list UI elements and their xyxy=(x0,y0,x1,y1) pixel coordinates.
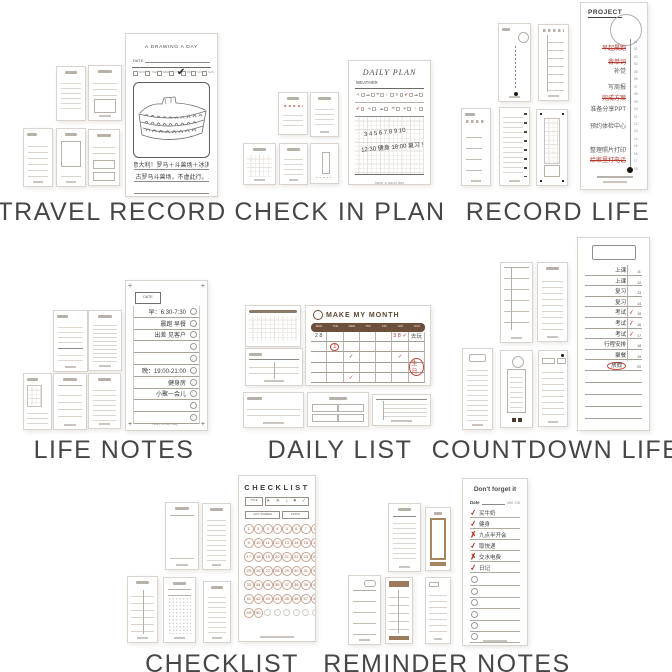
recordlife-mini-card-5 xyxy=(536,109,568,186)
ruled-lines xyxy=(208,593,226,634)
number-cell: 16 xyxy=(311,538,317,548)
number-cell xyxy=(273,608,283,618)
checkbox xyxy=(169,71,174,76)
row-circle xyxy=(190,355,197,362)
mini-footer-bar xyxy=(212,564,222,566)
number-cell xyxy=(282,608,292,618)
number-cell: 32 xyxy=(311,566,317,576)
travel-mini-card-3 xyxy=(23,128,53,187)
weekday-label: TUE xyxy=(333,326,338,329)
group-label-record-life: RECORD LIFE xyxy=(466,198,651,227)
ruled-lines xyxy=(207,516,226,561)
empty-rows xyxy=(470,575,520,646)
checklist-mini-card-1 xyxy=(165,502,199,570)
number-cell: 46 xyxy=(292,594,302,604)
finish-cell: FINISH xyxy=(282,511,309,519)
calendar-cell xyxy=(360,363,376,373)
divider xyxy=(355,102,424,103)
circle-mark xyxy=(518,32,529,43)
stamp-dots xyxy=(283,104,303,108)
row-circle xyxy=(190,367,197,374)
recordlife-mini-card-3 xyxy=(461,108,491,186)
countdown-row: 复习 14 xyxy=(585,297,642,308)
tick-number: 15 xyxy=(634,145,638,148)
number-cell: 22 xyxy=(292,552,302,562)
number-cell: 12 xyxy=(273,538,283,548)
ruled-lines xyxy=(58,389,82,421)
note-row: 健身房 xyxy=(134,377,199,389)
number-cell: 36 xyxy=(273,580,283,590)
reminder-mini-card-3 xyxy=(348,575,381,645)
countdown-row: 聚餐 19 xyxy=(585,350,642,361)
note-row: 早：6:30-7:30 xyxy=(134,306,199,318)
checklist-mini-card-2 xyxy=(202,503,231,570)
group-label-daily-list: DAILY LIST xyxy=(268,436,413,465)
note-row: 出差 见客户 xyxy=(134,330,199,342)
tick-number: 17 xyxy=(634,160,638,163)
number-cell: 47 xyxy=(301,594,311,604)
calendar-cell xyxy=(409,342,425,352)
mini-header-bar xyxy=(249,310,297,313)
memo-frame xyxy=(430,518,446,560)
lifenotes-mini-card-3 xyxy=(23,373,52,430)
mini-footer-bar xyxy=(359,639,370,641)
row-circle xyxy=(190,331,197,338)
date-label: DATE xyxy=(133,59,143,63)
calendar-cell: ✓ xyxy=(392,352,408,362)
mini-footer-bar xyxy=(472,424,482,426)
check-mark xyxy=(629,359,636,360)
tick-number: 08 xyxy=(634,93,638,96)
calendar-header: MAKE MY MONTH xyxy=(313,310,430,320)
group-daily-list: MAKE MY MONTH MONTUEWEDTHUFRISATSUN 2 83… xyxy=(0,0,672,672)
blank-box xyxy=(61,141,81,167)
date-row: DATE xyxy=(133,56,210,63)
row-text: 聚餐 xyxy=(585,354,629,360)
number-cell xyxy=(311,608,317,618)
countdown-row: 复习 13 xyxy=(585,286,642,297)
card-footer: Have a nice day ~ xyxy=(126,419,207,427)
check-mark xyxy=(629,274,636,275)
group-label-countdown-life: COUNTDOWN LIFE xyxy=(432,436,672,465)
mini-footer-bar xyxy=(434,638,443,640)
countdown-mini-card-3 xyxy=(462,348,493,430)
column-divider xyxy=(398,590,399,633)
checklist-mini-card-4 xyxy=(163,577,196,643)
circle-mark xyxy=(610,14,642,46)
row-text: 行程安排 xyxy=(585,343,629,349)
calendar-cell: ✓ xyxy=(344,352,360,362)
number-cell: 42 xyxy=(254,594,264,604)
mini-title-bar xyxy=(65,133,78,136)
check-mark: ✓ xyxy=(629,331,637,338)
todo-row: ✗ 九点半开会 xyxy=(470,529,520,540)
checkin-mini-card-3 xyxy=(243,143,276,185)
row-circle xyxy=(471,576,478,583)
note-rows: 早：6:30-7:30晨跑 早餐出差 见客户晚：19:00-21:00健身房小聚… xyxy=(133,306,200,424)
calendar-cell: 去玩 xyxy=(409,332,425,342)
divider xyxy=(58,348,83,349)
tick-number: 18 xyxy=(634,168,638,171)
row-text: 考试 xyxy=(585,322,629,328)
checkin-mini-card-5 xyxy=(310,143,339,184)
ruled-lines xyxy=(247,404,300,421)
countdown-row: 考试 ✓ 16 xyxy=(585,318,642,329)
tick-number: 06 xyxy=(634,78,638,81)
number-cell: 28 xyxy=(273,566,283,576)
mini-footer-bar xyxy=(99,423,110,425)
mini-footer-bar xyxy=(509,180,519,182)
number-cell: 44 xyxy=(273,594,283,604)
row-text: 复习 xyxy=(585,290,629,296)
row-number: 11 xyxy=(636,271,642,275)
calendar-cell xyxy=(344,332,360,342)
calendar-cell xyxy=(376,342,392,352)
table-rows xyxy=(389,590,409,633)
calendar-cell: ✓ xyxy=(344,373,360,383)
inner-frame xyxy=(507,369,526,413)
product-collage: A DRAWING A DAY DATE ✔ MONTUEWEDTHUFRISA… xyxy=(0,0,672,672)
empty-row xyxy=(585,383,642,395)
mini-footer-bar xyxy=(391,420,412,422)
number-cell: 45 xyxy=(282,594,292,604)
card-title: CHECKLIST xyxy=(239,483,315,492)
countdown-row: 行程安排 18 xyxy=(585,339,642,350)
calendar-cell xyxy=(327,373,343,383)
project-entry: 完成方案 xyxy=(602,93,626,102)
check-mark xyxy=(629,295,636,296)
footer-print-line xyxy=(603,181,627,183)
row-number: 13 xyxy=(636,292,642,296)
mini-footer-bar xyxy=(548,95,558,97)
ruled-lines xyxy=(27,409,48,424)
number-cell: 38 xyxy=(292,580,302,590)
calendar-cell xyxy=(311,363,327,373)
mini-footer-bar xyxy=(471,180,481,182)
calendar-cell xyxy=(376,363,392,373)
weather-icon: ☂ xyxy=(391,105,400,113)
number-cell: 7 xyxy=(301,524,311,534)
check-mark xyxy=(629,306,636,307)
tick-number: 14 xyxy=(634,138,638,141)
crop-mark: + xyxy=(201,421,205,428)
ruled-lines xyxy=(315,105,334,129)
weather-icon: ❄ xyxy=(403,105,411,113)
group-label-reminder-notes: REMINDER NOTES xyxy=(323,650,570,672)
group-label-check-in-plan: CHECK IN PLAN xyxy=(234,198,445,227)
corner-dot xyxy=(562,113,564,115)
row-circle xyxy=(471,645,478,646)
group-label-travel-record: TRAVEL RECORD xyxy=(0,198,227,227)
number-cell: 33 xyxy=(244,580,254,590)
corner-dot xyxy=(561,354,564,357)
number-cell: 49 xyxy=(244,608,254,618)
empty-row xyxy=(585,419,642,431)
check-mark xyxy=(629,369,636,370)
header-cell xyxy=(542,358,555,364)
checkin-mini-card-2 xyxy=(310,92,339,137)
number-cell: 41 xyxy=(244,594,254,604)
travel-mini-card-5 xyxy=(88,129,120,186)
dailylist-mini-card-1 xyxy=(245,305,301,347)
todo-row: ✗ 交水电费 xyxy=(470,551,520,562)
cell-mark: 2 8 xyxy=(315,333,323,339)
number-cell: 25 xyxy=(244,566,254,576)
group-reminder-notes: Don't forget it Date MM / DD ✓ 买牛奶 ✓ 健身 xyxy=(0,0,672,672)
number-cell: 19 xyxy=(263,552,273,562)
number-cell: 10 xyxy=(254,538,264,548)
date-box: DATE xyxy=(135,292,161,304)
empty-line xyxy=(134,182,209,194)
mini-footer-bar xyxy=(320,131,330,133)
title-cell: TITLE xyxy=(245,497,263,506)
project-entry: 背单词 xyxy=(608,57,626,66)
stamp-box xyxy=(518,418,522,422)
dotted-scale xyxy=(515,46,516,90)
group-label-life-notes: LIFE NOTES xyxy=(34,436,195,465)
divider xyxy=(132,67,211,68)
row-text: 买牛奶 xyxy=(479,509,496,518)
checklist-mini-card-3 xyxy=(127,576,158,643)
check-mark xyxy=(629,285,636,286)
mini-title-bar xyxy=(253,148,267,151)
number-cell: 48 xyxy=(311,594,317,604)
two-column-rows xyxy=(131,590,154,634)
weather-label: WEATHER xyxy=(356,81,423,85)
recordlife-mini-card-1 xyxy=(498,23,531,102)
calendar-cell: 生日 xyxy=(409,363,425,373)
circle-mark xyxy=(512,356,524,368)
header-cell xyxy=(557,358,566,364)
row-text: 早：6:30-7:30 xyxy=(149,307,186,316)
weekday-label: WED xyxy=(349,326,355,329)
reminder-notes-hero-card: Don't forget it Date MM / DD ✓ 买牛奶 ✓ 健身 xyxy=(462,478,528,646)
tick-number: 12 xyxy=(634,123,638,126)
card-title: A DRAWING A DAY xyxy=(126,42,217,51)
number-cell: 18 xyxy=(254,552,264,562)
handwritten-note: 去意大利！罗马＋斗兽场＋冰淇淋 xyxy=(134,158,209,170)
ruled-lines xyxy=(93,78,117,96)
checkbox xyxy=(202,71,207,76)
mini-footer-bar xyxy=(66,181,76,183)
reminder-mini-card-4 xyxy=(385,577,413,644)
calendar-cell xyxy=(311,352,327,362)
mini-footer-bar xyxy=(509,96,520,98)
ruled-lines xyxy=(510,373,523,409)
countdown-mini-card-5 xyxy=(538,350,568,427)
check-mark: ✓ xyxy=(629,310,637,317)
footer-print-bar xyxy=(260,636,293,638)
mini-title-bar xyxy=(173,582,187,585)
number-cell: 43 xyxy=(263,594,273,604)
number-cell: 14 xyxy=(292,538,302,548)
number-cell: 24 xyxy=(311,552,317,562)
empty-row xyxy=(470,586,520,597)
number-cell: 15 xyxy=(301,538,311,548)
icon-row: ✈ ☀ ♪ ♥ ✓ xyxy=(265,497,309,506)
ruled-lines xyxy=(283,111,303,128)
blank-box xyxy=(93,172,115,181)
mini-footer-bar xyxy=(254,179,265,181)
checkbox-row xyxy=(466,120,486,123)
project-entry: 给家里打电话 xyxy=(590,155,626,164)
dailylist-mini-card-4 xyxy=(307,392,369,427)
row-number: 16 xyxy=(636,324,642,328)
title-row: TITLE ✈ ☀ ♪ ♥ ✓ xyxy=(245,497,309,506)
ruled-lines xyxy=(503,113,523,177)
ruled-lines xyxy=(467,366,488,422)
smiley-icon xyxy=(313,310,323,320)
row-text: 放假 xyxy=(585,364,629,370)
header-line xyxy=(376,399,427,400)
empty-row xyxy=(585,407,642,419)
tick-number: 05 xyxy=(634,71,638,74)
mini-footer-bar xyxy=(65,366,77,368)
group-life-notes: + + + + DATE 早：6:30-7:30晨跑 早餐出差 见客户晚：19:… xyxy=(0,0,672,672)
weather-icon: ❄ xyxy=(395,91,403,99)
row-number: 14 xyxy=(636,303,642,307)
cell-mark: ✓ xyxy=(349,375,354,381)
row-text: 取快递 xyxy=(479,542,496,551)
notes-grid: 3 4 5 6 7 8 9 10 12:30 健身 18:00 复习 ! xyxy=(355,116,424,175)
mini-title-bar xyxy=(211,586,223,589)
row-number: 18 xyxy=(636,345,642,349)
empty-row xyxy=(470,575,520,586)
number-cell: 23 xyxy=(301,552,311,562)
checkin-mini-card-4 xyxy=(279,143,308,185)
number-cell: 2 xyxy=(254,524,264,534)
todo-row: ✓ 买牛奶 xyxy=(470,507,520,518)
project-entry: 补觉 xyxy=(614,66,626,75)
crop-mark: + xyxy=(128,283,132,290)
travel-mini-card-1 xyxy=(56,66,86,121)
empty-row xyxy=(470,609,520,620)
scale-lines xyxy=(466,127,482,177)
number-cell: 30 xyxy=(292,566,302,576)
day-checkbox: THU xyxy=(169,70,181,78)
mini-footer-bar xyxy=(212,637,221,639)
number-cell: 29 xyxy=(282,566,292,576)
daily-list-hero-card: MAKE MY MONTH MONTUEWEDTHUFRISATSUN 2 83… xyxy=(305,305,431,386)
number-cell: 27 xyxy=(263,566,273,576)
lifenotes-mini-card-5 xyxy=(88,373,121,429)
weather-icon: ☾ xyxy=(414,105,423,113)
check-mark: ✓ xyxy=(629,321,637,328)
calendar-cell xyxy=(376,332,392,342)
day-checkbox: WED xyxy=(157,70,169,78)
number-cell: 17 xyxy=(244,552,254,562)
ruled-lines xyxy=(249,362,299,379)
row-circle xyxy=(190,414,197,421)
mini-title-bar xyxy=(249,353,262,356)
mini-title-bar xyxy=(57,315,68,318)
cell-mark: 1 xyxy=(330,343,339,351)
calendar-cell xyxy=(344,363,360,373)
weather-icon: ☁ xyxy=(366,91,375,99)
checkin-mini-card-1 xyxy=(278,92,308,135)
footer-line xyxy=(170,558,194,559)
weather-icon: ✔ xyxy=(356,105,364,113)
row-text: 出差 见客户 xyxy=(154,330,186,339)
check-in-plan-hero-card: DAILY PLAN WEATHER ☀☁☂☾❄✔☁ ✔☀☁☂❄☾ 3 4 5 … xyxy=(348,60,431,185)
row-text: 交水电费 xyxy=(479,553,501,562)
number-cell: 8 xyxy=(311,524,317,534)
checkbox xyxy=(181,71,186,76)
tick-number: 09 xyxy=(634,101,638,104)
mini-footer-bar xyxy=(399,566,410,568)
ruled-lines xyxy=(542,276,563,334)
dot-grid xyxy=(168,597,191,634)
brown-header-bar xyxy=(389,581,409,587)
card-title: Don't forget it xyxy=(463,486,527,493)
number-cell: 4 xyxy=(273,524,283,534)
row-text: 晚：19:00-21:00 xyxy=(142,366,186,375)
row-text: 考试 xyxy=(585,333,629,339)
corner-dot xyxy=(562,180,564,182)
tick-number: 16 xyxy=(634,153,638,156)
group-checklist: CHECKLIST TITLE ✈ ☀ ♪ ♥ ✓ LAST NUMBER FI… xyxy=(0,0,672,672)
mini-title-bar xyxy=(63,378,77,381)
title-box xyxy=(469,354,486,362)
recordlife-mini-card-2 xyxy=(538,24,569,101)
crop-mark: + xyxy=(128,421,132,428)
number-cell: 1 xyxy=(244,524,254,534)
calendar-cell xyxy=(409,352,425,362)
calendar-cell xyxy=(376,352,392,362)
mini-footer-bar xyxy=(547,336,557,338)
grid-area xyxy=(544,118,560,164)
ruled-lines xyxy=(429,590,447,636)
end-dot xyxy=(627,167,633,173)
column-divider xyxy=(143,590,144,634)
blank-box xyxy=(312,404,338,412)
row-text: 复习 xyxy=(585,301,629,307)
note-row: 小聚一会儿 xyxy=(134,389,199,401)
timeline xyxy=(630,39,631,171)
mini-title-bar xyxy=(287,148,299,151)
countdown-row: 上课 11 xyxy=(585,265,642,276)
countdown-row: 上课 12 xyxy=(585,276,642,287)
status-row: LAST NUMBER FINISH xyxy=(245,511,309,519)
mini-footer-bar xyxy=(289,179,299,181)
number-cell: 11 xyxy=(263,538,273,548)
blank-box xyxy=(94,99,116,113)
ruled-lines xyxy=(28,141,48,178)
row-circle xyxy=(471,611,478,618)
life-notes-hero-card: + + + + DATE 早：6:30-7:30晨跑 早餐出差 见客户晚：19:… xyxy=(125,280,208,431)
calendar-cell xyxy=(327,352,343,362)
header-line xyxy=(170,515,194,516)
handwriting: 12:30 健身 18:00 复习 ! xyxy=(361,140,424,154)
edge-ticks xyxy=(524,113,527,177)
ruled-lines xyxy=(58,351,83,363)
row-circle xyxy=(190,308,197,315)
date-line xyxy=(482,499,506,505)
tan-footer-bar xyxy=(430,562,446,566)
row-text: 九点半开会 xyxy=(479,531,507,540)
todo-row: ✓ 健身 xyxy=(470,518,520,529)
number-cell: 50 xyxy=(254,608,264,618)
tick-number: 07 xyxy=(634,86,638,89)
calendar-cell xyxy=(344,342,360,352)
empty-row xyxy=(470,643,520,646)
mini-footer-bar xyxy=(263,422,284,424)
weekday-label: FRI xyxy=(382,326,386,329)
countdown-row: 考试 ✓ 17 xyxy=(585,329,642,340)
colosseum-sketch xyxy=(135,93,209,147)
project-entry: 早起晨跑 xyxy=(602,43,626,52)
blank-box xyxy=(312,414,338,422)
